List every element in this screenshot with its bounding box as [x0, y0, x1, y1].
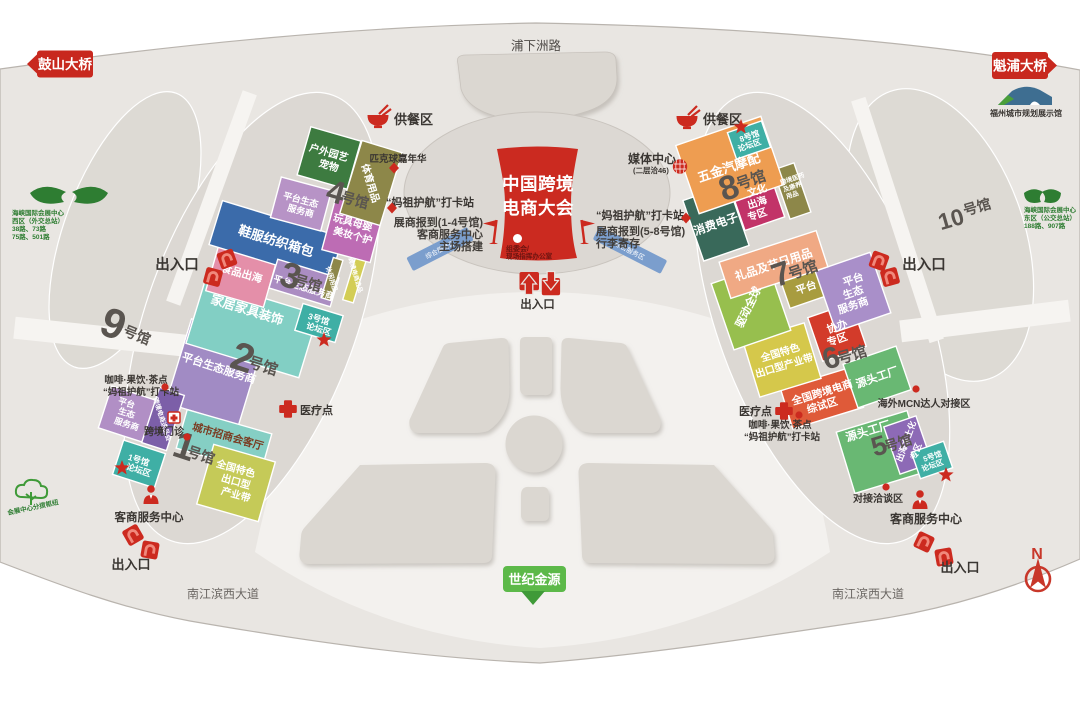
svg-text:咖啡·果饮·茶点: 咖啡·果饮·茶点	[748, 419, 812, 431]
svg-text:展商报到(1-4号馆): 展商报到(1-4号馆)	[393, 215, 484, 229]
svg-text:客商服务中心: 客商服务中心	[416, 227, 483, 241]
svg-text:主场搭建: 主场搭建	[439, 239, 484, 253]
svg-text:南江滨西大道: 南江滨西大道	[832, 586, 904, 601]
svg-text:38路、73路: 38路、73路	[12, 224, 46, 233]
svg-text:浦下洲路: 浦下洲路	[511, 38, 562, 53]
svg-text:中国跨境: 中国跨境	[502, 174, 574, 194]
svg-text:“妈祖护航”打卡站: “妈祖护航”打卡站	[386, 195, 474, 209]
svg-text:行李寄存: 行李寄存	[595, 236, 640, 250]
svg-text:对接洽谈区: 对接洽谈区	[853, 492, 903, 505]
svg-text:东区（公交总站）: 东区（公交总站）	[1024, 213, 1076, 222]
svg-text:南江滨西大道: 南江滨西大道	[187, 586, 259, 601]
svg-text:“妈祖护航”打卡站: “妈祖护航”打卡站	[596, 208, 684, 222]
svg-text:现场指挥办公室: 现场指挥办公室	[506, 252, 553, 261]
svg-text:“妈祖护航”打卡站: “妈祖护航”打卡站	[744, 431, 821, 443]
svg-text:(二层洽46): (二层洽46)	[633, 165, 669, 175]
svg-text:海峡国际会展中心: 海峡国际会展中心	[1024, 205, 1077, 214]
svg-text:跨境门诊: 跨境门诊	[144, 425, 185, 438]
svg-text:N: N	[1031, 546, 1043, 563]
svg-text:188路、907路: 188路、907路	[1024, 221, 1066, 230]
svg-text:海外MCN达人对接区: 海外MCN达人对接区	[878, 397, 971, 410]
svg-text:媒体中心: 媒体中心	[628, 151, 676, 166]
svg-text:75路、501路: 75路、501路	[12, 232, 50, 241]
svg-text:出入口: 出入口	[111, 557, 150, 572]
svg-text:海峡国际会展中心: 海峡国际会展中心	[12, 208, 65, 217]
svg-text:咖啡·果饮·茶点: 咖啡·果饮·茶点	[104, 374, 168, 386]
svg-text:组委会/: 组委会/	[506, 244, 529, 253]
svg-text:展商报到(5-8号馆): 展商报到(5-8号馆)	[595, 224, 686, 238]
svg-text:出入口: 出入口	[155, 256, 199, 274]
svg-text:客商服务中心: 客商服务中心	[889, 511, 962, 526]
svg-text:医疗点: 医疗点	[739, 404, 772, 418]
svg-text:电商大会: 电商大会	[502, 198, 574, 218]
svg-text:医疗点: 医疗点	[300, 403, 333, 417]
svg-text:福州城市规划展示馆: 福州城市规划展示馆	[989, 108, 1062, 118]
svg-text:出入口: 出入口	[520, 297, 555, 311]
svg-text:西区（外交总站）: 西区（外交总站）	[12, 216, 64, 225]
svg-text:出入口: 出入口	[940, 560, 979, 575]
svg-text:出入口: 出入口	[902, 256, 946, 274]
svg-text:鼓山大桥: 鼓山大桥	[38, 56, 92, 72]
svg-text:匹克球嘉年华: 匹克球嘉年华	[369, 153, 427, 165]
svg-text:魁浦大桥: 魁浦大桥	[993, 58, 1047, 74]
svg-text:客商服务中心: 客商服务中心	[114, 510, 184, 524]
svg-text:供餐区: 供餐区	[393, 112, 433, 127]
svg-text:世纪金源: 世纪金源	[508, 572, 560, 587]
